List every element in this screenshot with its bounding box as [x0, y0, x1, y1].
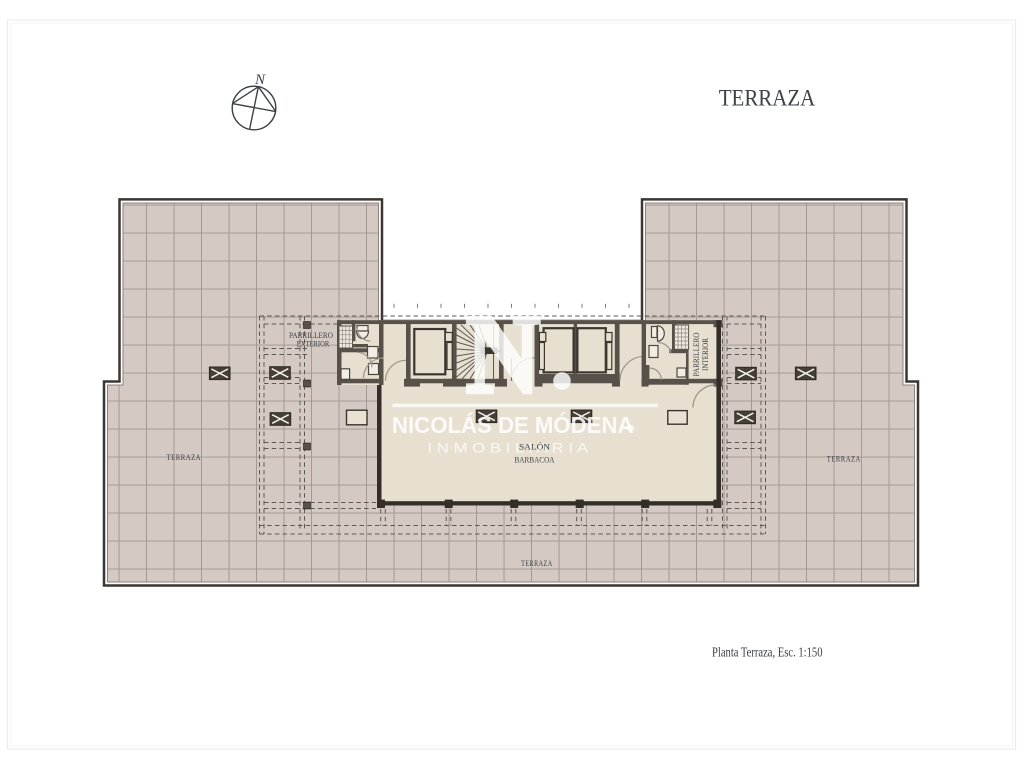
svg-text:TERRAZA: TERRAZA: [827, 453, 861, 463]
svg-text:N: N: [466, 293, 540, 417]
svg-text:NICOLÁS DE MÓDENA: NICOLÁS DE MÓDENA: [392, 411, 634, 438]
svg-text:PARRILLERO: PARRILLERO: [692, 332, 701, 376]
svg-text:PARRILLERO: PARRILLERO: [289, 331, 333, 340]
svg-text:TERRAZA: TERRAZA: [521, 558, 553, 568]
svg-text:Planta Terraza, Esc. 1:150: Planta Terraza, Esc. 1:150: [712, 645, 823, 660]
svg-text:SALÓN: SALÓN: [519, 442, 551, 452]
svg-text:I N M O B I L I A R I A: I N M O B I L I A R I A: [428, 440, 589, 455]
svg-text:EXTERIOR: EXTERIOR: [297, 340, 330, 349]
svg-text:BARBACOA: BARBACOA: [515, 455, 556, 465]
svg-text:TERRAZA: TERRAZA: [167, 452, 202, 462]
svg-text:N: N: [254, 72, 266, 88]
svg-text:INTERIOR: INTERIOR: [701, 338, 710, 371]
svg-text:TERRAZA: TERRAZA: [719, 86, 816, 112]
